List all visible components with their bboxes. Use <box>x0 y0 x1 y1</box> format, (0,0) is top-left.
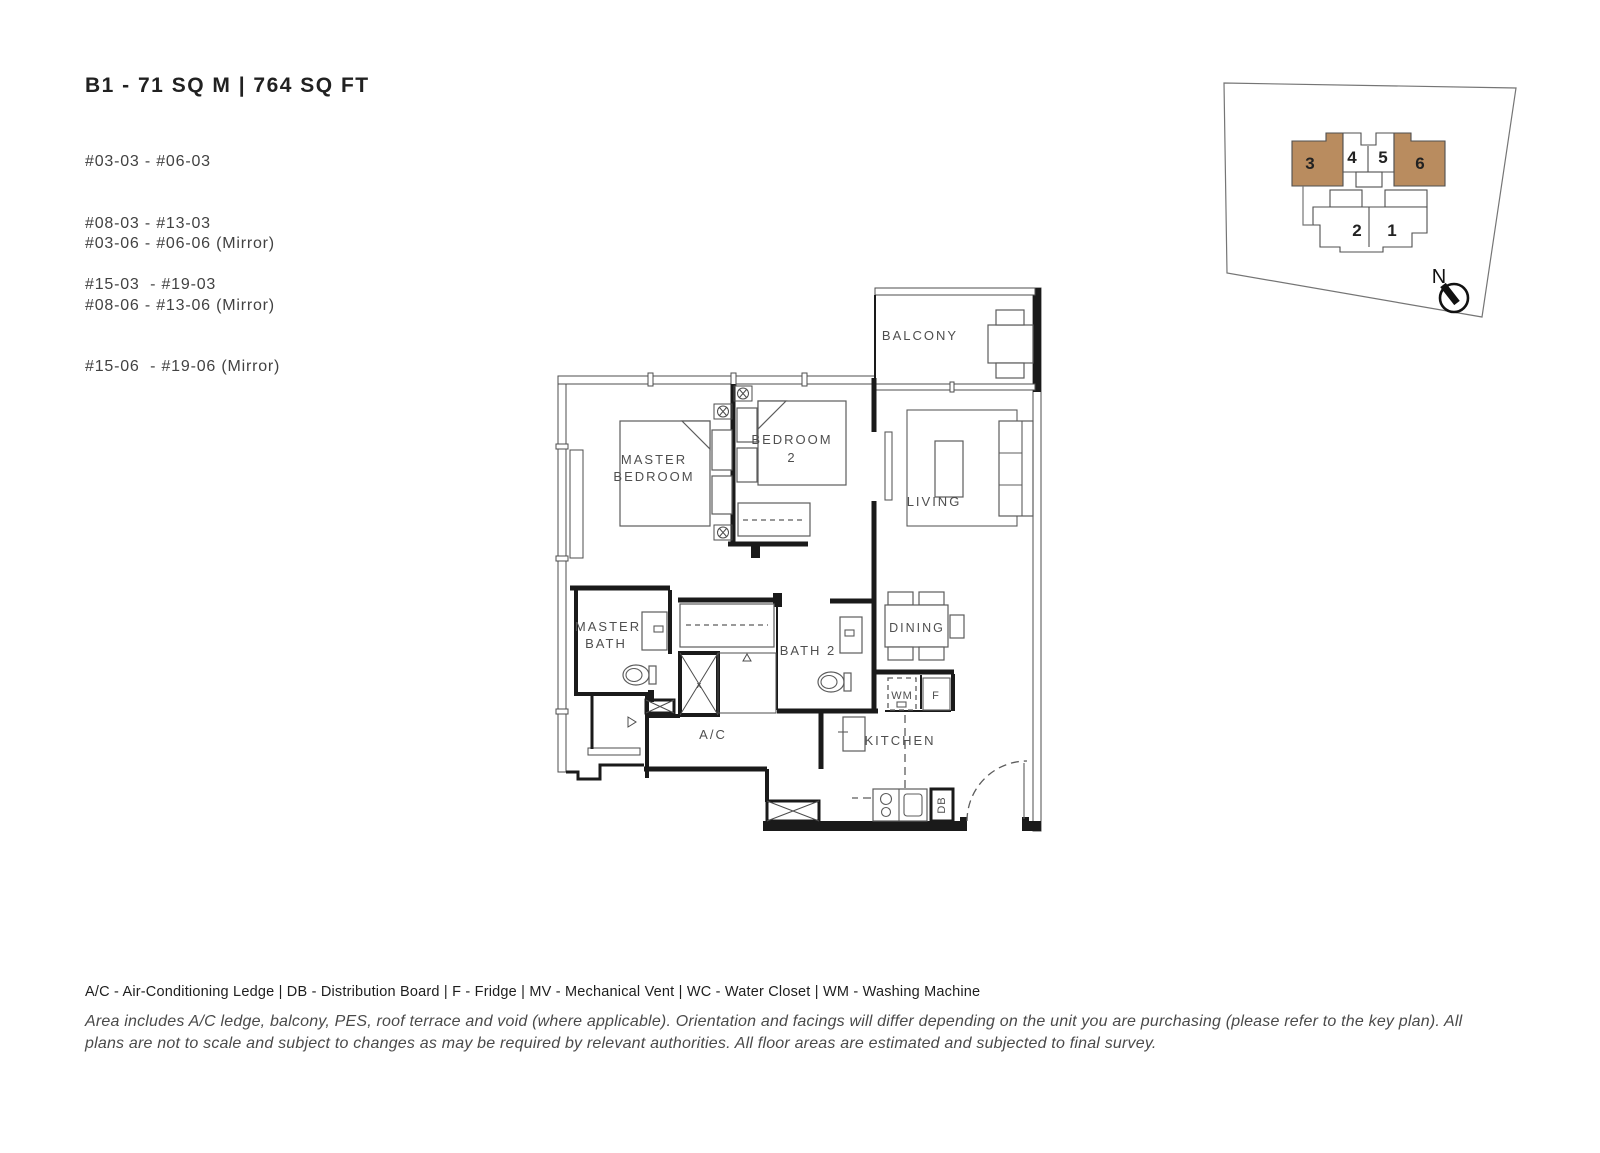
site-boundary <box>1224 83 1516 317</box>
entrance-frame <box>960 817 967 831</box>
north-arrow-icon: N <box>1432 266 1468 312</box>
unit-stack-line: #08-06 - #13-06 (Mirror) <box>85 296 280 317</box>
room-label-kitchen: KITCHEN <box>864 733 935 748</box>
window-wall-balcony-top <box>875 288 1035 295</box>
window-mullion <box>648 373 653 386</box>
label-shower-x: x <box>697 680 702 690</box>
window-lower-left <box>588 748 640 755</box>
water-closet-tank <box>844 673 851 691</box>
window-wall-top <box>558 376 875 384</box>
balcony-chair <box>996 310 1024 325</box>
shower-compartment <box>718 653 776 713</box>
dining-chair <box>888 592 913 605</box>
room-label-bedroom2: 2 <box>787 450 796 465</box>
window-panel-left <box>570 450 583 558</box>
mv-triangle <box>743 654 751 661</box>
corridor-door-leaf <box>885 432 892 500</box>
balcony-table <box>988 325 1033 363</box>
disclaimer-text: Area includes A/C ledge, balcony, PES, r… <box>85 1011 1497 1054</box>
column-hatch <box>714 525 732 540</box>
unit-stack-line: #15-06 - #19-06 (Mirror) <box>85 357 280 378</box>
room-label-ac: A/C <box>699 727 727 742</box>
room-label-living: LIVING <box>907 494 962 509</box>
key-plan-unit-6: 6 <box>1415 154 1424 173</box>
room-label-bedroom2: BEDROOM <box>751 432 832 447</box>
wall-lowerleft-steps <box>566 765 644 779</box>
key-plan-wing-connector <box>1303 186 1313 225</box>
balcony-chair <box>996 363 1024 378</box>
water-closet <box>623 665 649 685</box>
room-label-bath2: BATH 2 <box>780 643 837 658</box>
sliding-door-tick <box>950 382 954 392</box>
label-fridge: F <box>932 690 940 702</box>
dining-chair <box>919 592 944 605</box>
key-plan-core-tab <box>1356 172 1382 187</box>
wall-right-balcony <box>1033 288 1041 392</box>
room-label-master-bedroom: BEDROOM <box>613 469 694 484</box>
wall-bottom-right <box>1029 821 1041 831</box>
nightstand <box>712 476 732 514</box>
key-plan-unit-5: 5 <box>1378 148 1387 167</box>
room-label-dining: DINING <box>889 621 945 635</box>
entrance-frame <box>1022 817 1029 831</box>
balcony-sliding-door <box>875 384 1035 390</box>
door-stop <box>751 546 760 558</box>
dining-chair <box>950 615 964 638</box>
water-closet-tank <box>649 666 656 684</box>
key-plan-wing-shape <box>1313 207 1427 252</box>
entrance-door-arc <box>967 761 1027 821</box>
water-closet <box>818 672 844 692</box>
coffee-table <box>935 441 963 497</box>
key-plan-unit-3: 3 <box>1305 154 1314 173</box>
label-db: DB <box>936 796 948 813</box>
key-plan-unit-4: 4 <box>1347 148 1357 167</box>
ac-hatch-cross <box>646 700 674 713</box>
room-label-master-bath: BATH <box>585 636 627 651</box>
room-label-balcony: BALCONY <box>882 328 958 343</box>
window-mullion <box>802 373 807 386</box>
column-hatch <box>714 404 732 419</box>
label-wm: WM <box>891 690 913 702</box>
room-label-master-bedroom: MASTER <box>621 452 687 467</box>
key-plan-unit-2: 2 <box>1352 221 1361 240</box>
nightstand <box>712 430 732 470</box>
ac-ledge-cross <box>767 801 819 821</box>
sofa <box>999 421 1033 516</box>
window-mullion <box>556 556 568 561</box>
dining-chair <box>888 647 913 660</box>
floor-plan: BALCONY MASTER BEDROOM BEDROOM 2 LIVING … <box>530 268 1050 853</box>
page-title: B1 - 71 SQ M | 764 SQ FT <box>85 74 370 98</box>
washing-machine-detail <box>897 702 906 707</box>
room-label-master-bath: MASTER <box>575 619 641 634</box>
key-plan-wing-balcony-right <box>1385 190 1427 207</box>
unit-stack-line: #03-06 - #06-06 (Mirror) <box>85 234 280 255</box>
legend-text: A/C - Air-Conditioning Ledge | DB - Dist… <box>85 984 980 1000</box>
unit-stack-group-2: #03-06 - #06-06 (Mirror) #08-06 - #13-06… <box>85 193 280 398</box>
key-plan-unit-1: 1 <box>1387 221 1396 240</box>
window-mullion <box>556 709 568 714</box>
dining-chair <box>919 647 944 660</box>
north-needle <box>1443 285 1457 303</box>
floor-plan-windows <box>556 288 1041 831</box>
key-plan-wing-balcony-left <box>1330 190 1362 207</box>
key-plan: 3 4 5 6 2 1 N <box>1180 55 1520 325</box>
key-plan-unit3-shape <box>1292 133 1343 186</box>
vanity <box>840 617 862 653</box>
door-swing-marker <box>628 717 636 727</box>
kitchen-cabinet <box>843 717 865 751</box>
unit-stack-line: #03-03 - #06-03 <box>85 152 216 173</box>
nightstand <box>737 448 757 482</box>
window-mullion <box>556 444 568 449</box>
column-hatch <box>734 386 752 401</box>
